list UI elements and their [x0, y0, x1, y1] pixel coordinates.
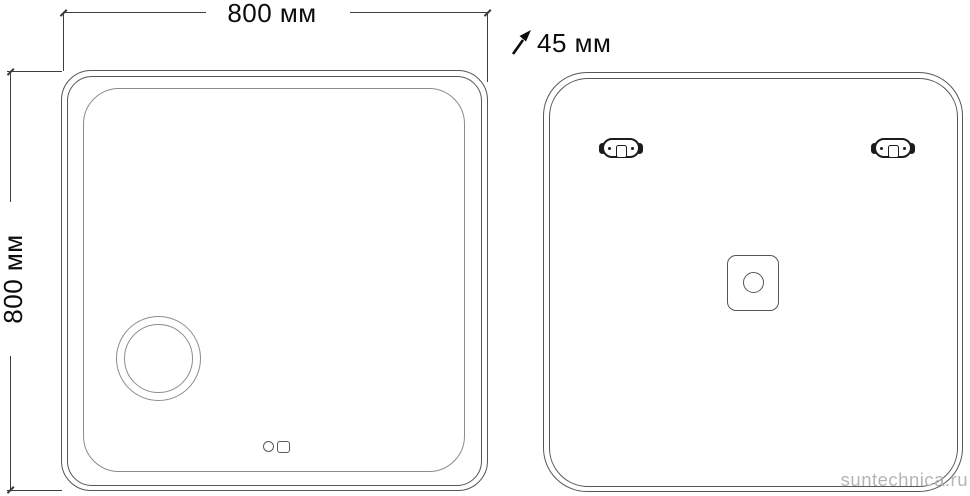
touch-sensor-square-icon: [277, 441, 290, 454]
front-led-zone-outline: [83, 88, 465, 472]
bracket-notch-icon: [888, 145, 899, 158]
height-extension-line-top: [7, 71, 62, 72]
bracket-screw-hole-icon: [880, 147, 883, 150]
width-dimension-line-left: [63, 12, 206, 13]
junction-box-icon: [727, 255, 779, 311]
bracket-notch-icon: [616, 145, 627, 158]
height-extension-line-bottom: [7, 490, 62, 491]
height-dimension-line-bottom: [10, 356, 11, 490]
mirror-dimension-drawing: 800 мм 800 мм 45 мм: [0, 0, 970, 496]
bracket-screw-hole-icon: [903, 147, 906, 150]
height-dimension-label: 800 мм: [0, 219, 26, 339]
width-extension-line-right: [487, 12, 488, 82]
bracket-screw-hole-icon: [608, 147, 611, 150]
bracket-screw-hole-icon: [631, 147, 634, 150]
width-extension-line-left: [63, 12, 64, 71]
height-dimension-line-top: [10, 71, 11, 202]
magnifying-mirror-inner-ring: [124, 324, 193, 393]
junction-box-cable-hole-icon: [743, 272, 764, 293]
watermark: suntechnica.ru: [841, 469, 968, 491]
mounting-bracket-right-icon: [874, 138, 912, 158]
ne-arrow-icon: [510, 29, 534, 56]
mounting-bracket-left-icon: [602, 138, 640, 158]
width-dimension-line-right: [350, 12, 488, 13]
depth-dimension-label: 45 мм: [537, 30, 611, 56]
width-dimension-label: 800 мм: [212, 0, 332, 26]
touch-sensor-circle-icon: [263, 441, 274, 452]
